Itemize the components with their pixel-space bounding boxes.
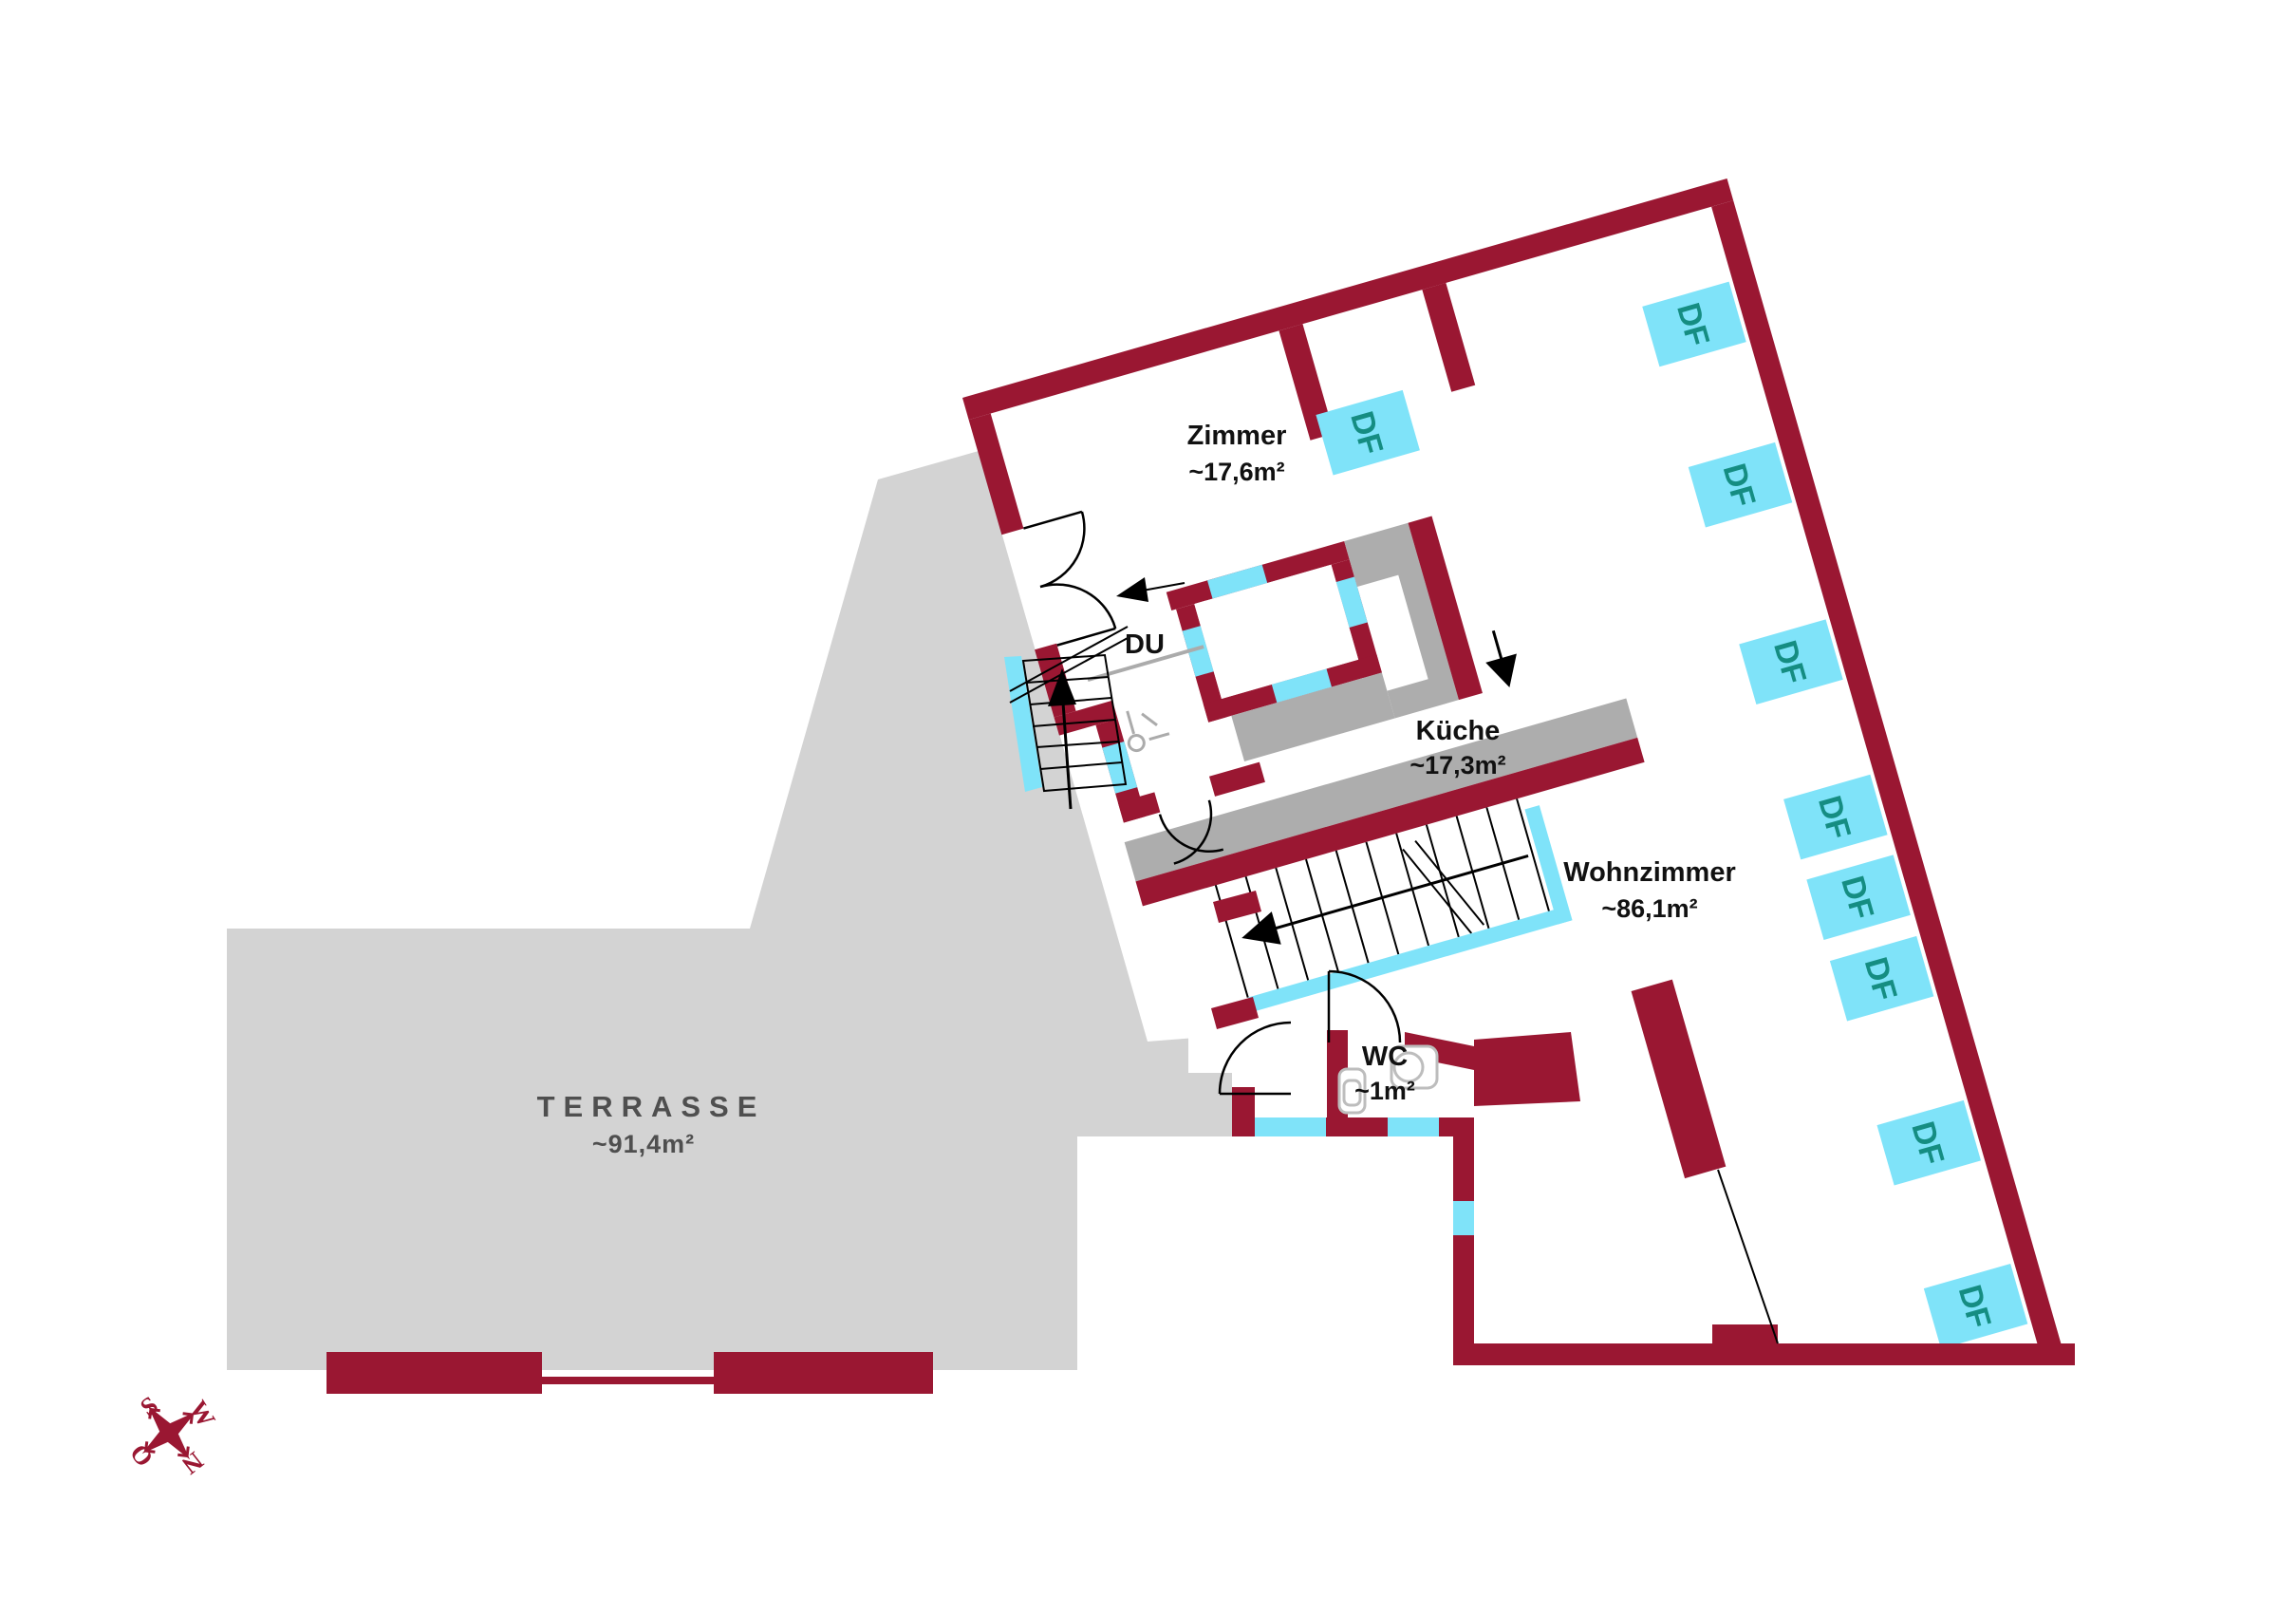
label-wohnzimmer-area: ~86,1m² <box>1601 894 1697 923</box>
label-zimmer: Zimmer <box>1187 421 1287 451</box>
label-wohnzimmer: Wohnzimmer <box>1563 857 1736 888</box>
label-terrasse-area: ~91,4m² <box>592 1130 695 1158</box>
window-wc-south-2 <box>1388 1117 1439 1136</box>
window-wc-south-1 <box>1255 1117 1326 1136</box>
wall-chunk-east-of-wc <box>1474 1032 1580 1106</box>
label-wc-area: ~1m² <box>1354 1077 1415 1105</box>
label-kueche: Küche <box>1416 716 1501 746</box>
label-terrasse: TERRASSE <box>537 1090 766 1123</box>
label-wc: WC <box>1362 1042 1408 1072</box>
west-wall-lower <box>1453 1136 1474 1365</box>
label-kueche-area: ~17,3m² <box>1409 751 1505 779</box>
south-wall-notch <box>1712 1324 1778 1343</box>
floor-plan-page: DF DF DF DF DF DF <box>0 0 2296 1615</box>
window-west-lower <box>1453 1201 1474 1235</box>
wc-south-wall-mid <box>1326 1117 1388 1136</box>
wc-south-wall-right <box>1439 1117 1474 1136</box>
balustrade-step-line <box>542 1377 717 1384</box>
label-zimmer-area: ~17,6m² <box>1188 458 1284 486</box>
floor-plan-svg: DF DF DF DF DF DF <box>0 0 2296 1615</box>
label-du: DU <box>1125 629 1165 660</box>
south-wall <box>1453 1343 2075 1365</box>
balustrade-block-left <box>327 1352 542 1394</box>
balustrade-block-right <box>714 1352 933 1394</box>
compass-letter-west: W <box>183 1396 221 1433</box>
compass-rose: S W O N <box>121 1384 220 1480</box>
